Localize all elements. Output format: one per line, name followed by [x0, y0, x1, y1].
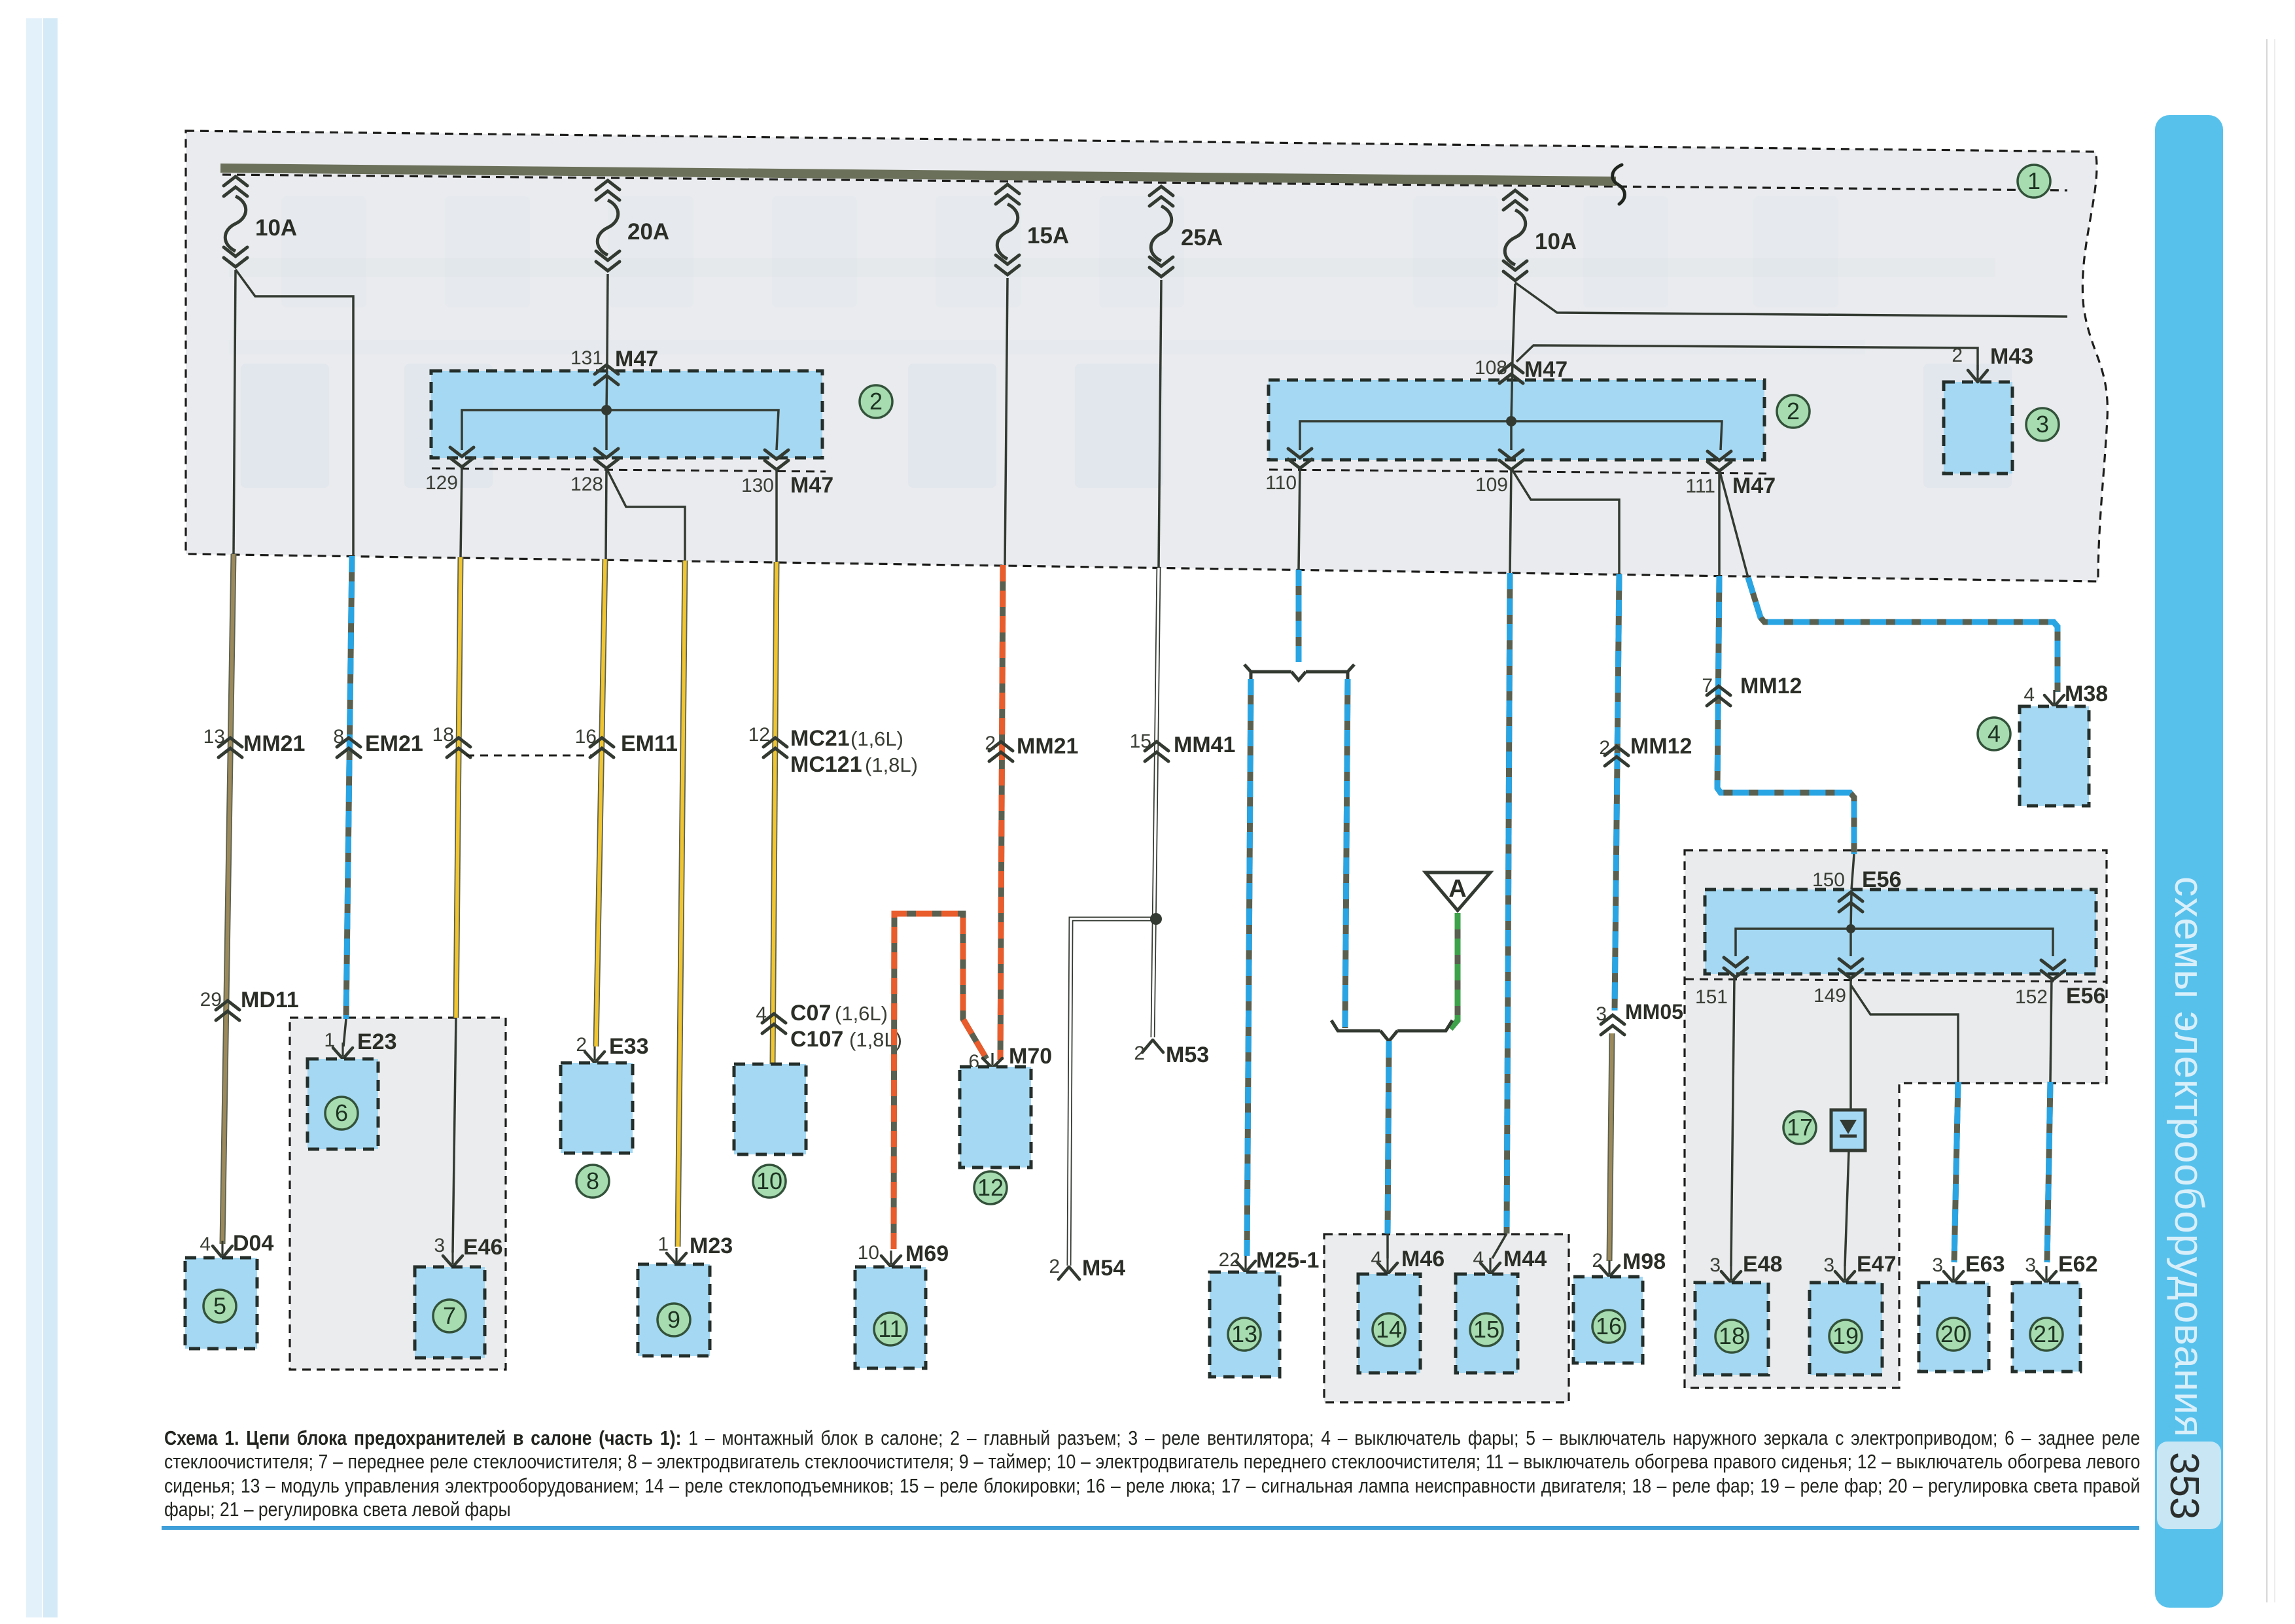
svg-text:15A: 15A: [1027, 223, 1069, 249]
svg-text:1: 1: [657, 1234, 669, 1255]
svg-text:MC121: MC121: [790, 752, 862, 777]
svg-text:2: 2: [1049, 1256, 1060, 1277]
svg-text:MM41: MM41: [1174, 733, 1235, 757]
svg-text:2: 2: [1592, 1250, 1603, 1271]
svg-text:9: 9: [667, 1306, 680, 1333]
svg-text:10A: 10A: [1535, 229, 1577, 254]
svg-text:MC21: MC21: [790, 726, 850, 751]
svg-text:16: 16: [575, 726, 597, 748]
svg-text:3: 3: [1932, 1254, 1943, 1276]
svg-text:2: 2: [1599, 737, 1610, 759]
svg-text:M47: M47: [1524, 357, 1568, 382]
svg-text:29: 29: [200, 989, 222, 1011]
svg-text:111: 111: [1685, 475, 1715, 497]
svg-text:15: 15: [1473, 1316, 1499, 1343]
svg-text:E46: E46: [463, 1235, 503, 1260]
svg-text:16: 16: [1596, 1313, 1622, 1339]
svg-text:M38: M38: [2065, 682, 2108, 706]
svg-text:M54: M54: [1082, 1256, 1125, 1281]
svg-text:4: 4: [756, 1003, 767, 1025]
svg-text:M69: M69: [905, 1241, 949, 1266]
svg-text:109: 109: [1475, 474, 1508, 496]
svg-text:M25-1: M25-1: [1256, 1248, 1319, 1273]
svg-text:3: 3: [1709, 1254, 1721, 1276]
svg-text:131: 131: [570, 347, 603, 369]
svg-text:E23: E23: [357, 1029, 397, 1054]
svg-text:E62: E62: [2058, 1252, 2098, 1277]
svg-text:129: 129: [425, 472, 458, 494]
svg-text:2: 2: [1952, 345, 1963, 366]
svg-text:149: 149: [1813, 985, 1846, 1007]
svg-text:18: 18: [432, 724, 454, 746]
svg-text:4: 4: [1473, 1248, 1484, 1270]
svg-text:15: 15: [1130, 731, 1151, 752]
svg-text:E56: E56: [1862, 867, 1902, 892]
svg-text:A: A: [1448, 875, 1466, 903]
svg-text:1: 1: [2027, 167, 2041, 194]
svg-text:17: 17: [1787, 1114, 1813, 1141]
svg-text:20: 20: [1940, 1321, 1967, 1347]
svg-text:7: 7: [1702, 675, 1713, 697]
svg-text:EM21: EM21: [365, 731, 423, 756]
svg-text:18: 18: [1719, 1322, 1745, 1349]
svg-text:E56: E56: [2066, 984, 2106, 1009]
svg-text:4: 4: [2023, 684, 2035, 706]
svg-text:M47: M47: [615, 347, 658, 371]
svg-text:MD11: MD11: [241, 988, 299, 1012]
svg-text:M53: M53: [1166, 1043, 1209, 1067]
svg-text:110: 110: [1265, 472, 1297, 494]
svg-text:4: 4: [1371, 1248, 1382, 1270]
svg-text:20A: 20A: [627, 219, 669, 245]
svg-text:10: 10: [858, 1242, 879, 1264]
svg-text:M43: M43: [1990, 344, 2033, 369]
svg-text:MM21: MM21: [1017, 734, 1078, 759]
svg-text:MM05: MM05: [1625, 1000, 1683, 1024]
svg-text:2: 2: [985, 733, 996, 754]
svg-text:13: 13: [203, 726, 225, 748]
svg-text:4: 4: [200, 1234, 211, 1255]
svg-text:13: 13: [1231, 1321, 1257, 1347]
svg-text:12: 12: [977, 1174, 1004, 1201]
svg-text:6: 6: [335, 1099, 348, 1126]
svg-text:E33: E33: [609, 1034, 649, 1059]
svg-text:10A: 10A: [255, 215, 297, 241]
svg-text:C107: C107: [790, 1027, 843, 1052]
svg-text:128: 128: [570, 474, 603, 495]
svg-text:2: 2: [869, 388, 883, 415]
svg-text:10: 10: [756, 1167, 782, 1194]
svg-text:2: 2: [1134, 1043, 1145, 1064]
svg-text:C07: C07: [790, 1001, 831, 1026]
svg-text:1: 1: [324, 1029, 335, 1051]
svg-text:(1,6L): (1,6L): [835, 1002, 888, 1025]
svg-text:M47: M47: [790, 473, 833, 498]
svg-text:M44: M44: [1503, 1247, 1547, 1271]
svg-text:22: 22: [1219, 1249, 1240, 1271]
svg-text:M47: M47: [1732, 474, 1776, 498]
svg-text:2: 2: [576, 1034, 587, 1056]
svg-text:M98: M98: [1622, 1249, 1666, 1274]
svg-text:130: 130: [741, 475, 774, 496]
svg-text:21: 21: [2033, 1321, 2059, 1347]
svg-text:3: 3: [2036, 411, 2049, 438]
svg-text:MM12: MM12: [1630, 734, 1692, 759]
svg-text:E47: E47: [1857, 1252, 1897, 1277]
svg-text:E63: E63: [1965, 1252, 2005, 1277]
svg-text:M70: M70: [1009, 1044, 1052, 1069]
svg-text:E48: E48: [1743, 1252, 1783, 1277]
svg-text:150: 150: [1812, 869, 1845, 891]
svg-text:12: 12: [748, 724, 770, 746]
svg-text:3: 3: [1596, 1003, 1607, 1025]
svg-text:(1,6L): (1,6L): [850, 727, 903, 750]
svg-text:152: 152: [2015, 986, 2048, 1008]
svg-text:3: 3: [2025, 1254, 2036, 1276]
svg-text:25A: 25A: [1181, 225, 1223, 251]
svg-text:D04: D04: [233, 1231, 273, 1256]
svg-text:MM21: MM21: [243, 731, 305, 756]
svg-text:8: 8: [333, 726, 344, 748]
svg-text:5: 5: [213, 1292, 226, 1319]
svg-text:7: 7: [443, 1302, 456, 1329]
svg-text:11: 11: [878, 1315, 902, 1342]
svg-text:108: 108: [1475, 357, 1507, 379]
svg-text:MM12: MM12: [1740, 674, 1802, 699]
svg-text:19: 19: [1832, 1322, 1859, 1349]
svg-text:M46: M46: [1401, 1247, 1445, 1271]
svg-text:2: 2: [1787, 398, 1800, 424]
svg-text:(1,8L): (1,8L): [865, 753, 918, 776]
svg-text:EM11: EM11: [621, 731, 678, 756]
svg-text:3: 3: [434, 1235, 445, 1256]
svg-text:M23: M23: [690, 1234, 733, 1258]
svg-text:14: 14: [1376, 1316, 1402, 1343]
svg-text:151: 151: [1695, 986, 1728, 1008]
svg-text:4: 4: [1988, 720, 2001, 747]
svg-text:3: 3: [1823, 1254, 1834, 1276]
svg-text:8: 8: [586, 1167, 599, 1194]
